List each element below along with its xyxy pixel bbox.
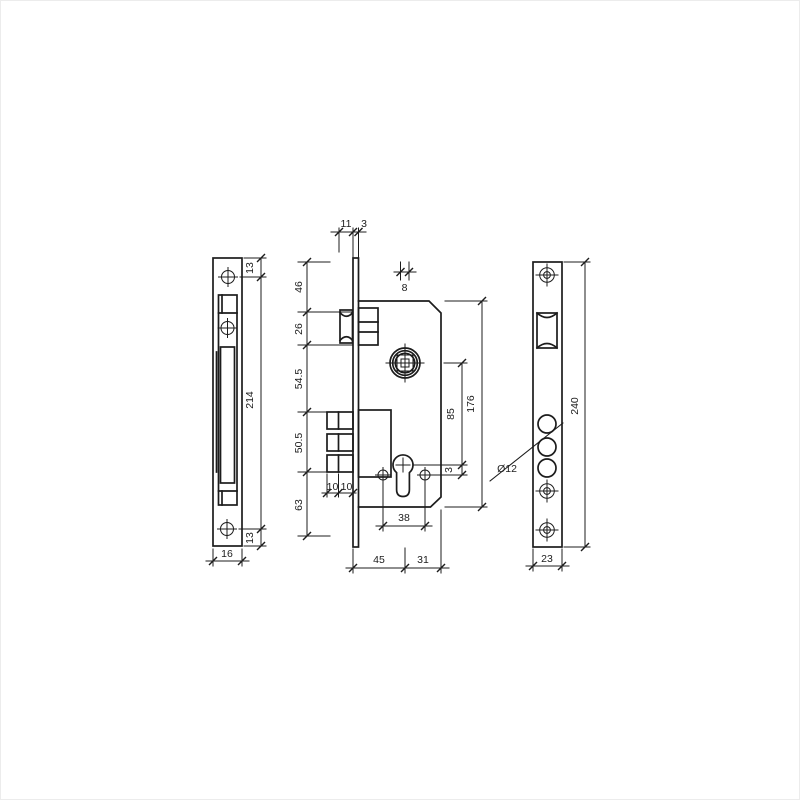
- dim-faceplate-length: 240: [569, 397, 581, 415]
- dim-cylinder-screw-offset: 3: [443, 467, 455, 473]
- left-dim-chain: [298, 259, 353, 540]
- dim-case-height: 176: [465, 395, 477, 413]
- screw-hole-symbol: [218, 319, 237, 338]
- dim-screw-spacing: 38: [398, 512, 410, 524]
- dim-spindle-width: 8: [402, 282, 408, 294]
- spindle-dim: [394, 262, 416, 280]
- dim-center-distance: 85: [445, 408, 457, 420]
- dim-faceplate-width: 23: [541, 553, 553, 565]
- spindle-follower-hub: [386, 344, 424, 382]
- dead-bolt: [327, 410, 391, 477]
- dim-strike-length: 214: [244, 391, 256, 409]
- strike-plate-view: 13 214 13 16: [206, 255, 266, 567]
- latch-projection-dim: [331, 228, 366, 258]
- faceplate-view: Ø12 240 23: [490, 259, 590, 572]
- dim-strike-bottom-offset: 13: [244, 532, 256, 544]
- dim-case-depth: 31: [417, 554, 429, 566]
- euro-cylinder-hole: [393, 455, 413, 497]
- dim-backset: 45: [373, 554, 385, 566]
- technical-drawing-canvas: 13 214 13 16: [0, 0, 800, 800]
- dim-latch-projection: 11: [341, 218, 352, 230]
- latch-bolt: [340, 308, 378, 345]
- screw-hole-symbol: [536, 480, 558, 502]
- latch-cutout: [537, 313, 557, 348]
- screw-hole-symbol: [219, 268, 238, 287]
- screw-hole-symbol: [536, 264, 558, 286]
- dim-seg-63: 63: [293, 499, 305, 511]
- screw-hole-symbol: [218, 520, 237, 539]
- drawing-page: 13 214 13 16: [0, 0, 800, 800]
- dim-seg-46: 46: [293, 281, 305, 293]
- strike-plate-dim-lines: [206, 255, 266, 567]
- dim-strike-width: 16: [221, 548, 233, 560]
- dim-seg-54-5: 54.5: [293, 369, 305, 390]
- dim-seg-50-5: 50.5: [293, 433, 305, 454]
- dim-seg-26: 26: [293, 323, 305, 335]
- dim-bolt-step-left: 10: [327, 481, 339, 493]
- lock-body-view: 11 3 8 46 26 54.5: [293, 218, 487, 573]
- dim-faceplate-thickness: 3: [361, 218, 367, 230]
- dim-strike-top-offset: 13: [244, 262, 256, 274]
- dim-bolt-step-right: 10: [341, 481, 353, 493]
- bolt-hole: [538, 459, 556, 477]
- dim-hole-diameter: Ø12: [497, 463, 517, 475]
- screw-hole-symbol: [536, 519, 558, 541]
